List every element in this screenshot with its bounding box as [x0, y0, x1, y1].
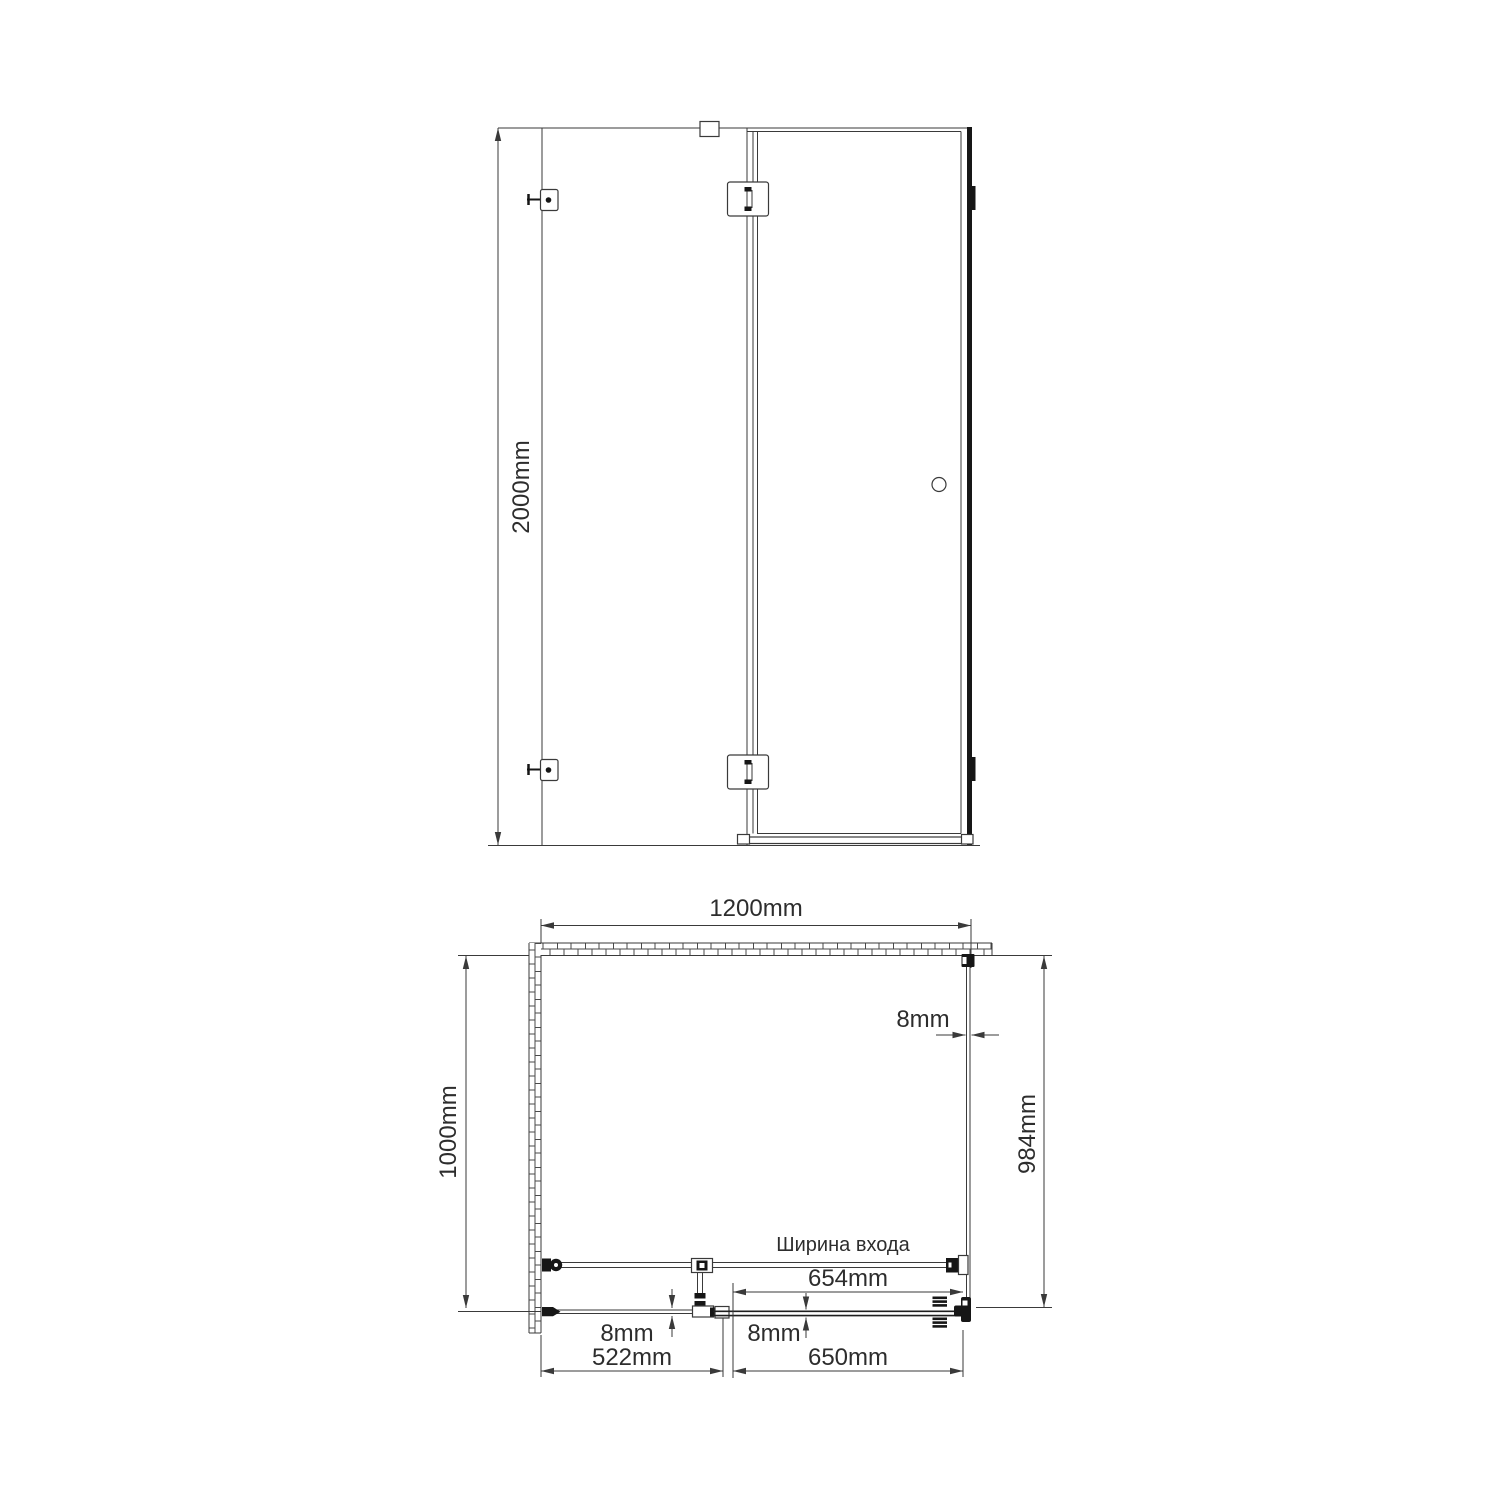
height-dimension-label: 2000mm: [508, 440, 535, 533]
dim-height-2000: 2000mm: [498, 128, 542, 845]
top-glass-clamp: [700, 122, 719, 137]
technical-drawing-canvas: 2000mm: [0, 0, 1500, 1500]
side-wall-bracket-bottom: [972, 757, 976, 781]
support-bar: [542, 1256, 968, 1275]
entry-width-caption: Ширина входа: [776, 1234, 910, 1256]
wall-bracket-top: [527, 190, 558, 211]
dim-depth-1000: 1000mm: [435, 956, 541, 1312]
width-dimension-label: 1200mm: [709, 895, 802, 922]
door-section-label: 650mm: [808, 1344, 888, 1371]
plan-view: 1200mm 1000mm 984mm 8mm: [435, 895, 1052, 1378]
door-glass-thickness-label: 8mm: [747, 1320, 800, 1347]
wall-left: [529, 943, 541, 1333]
side-glass-thickness-label: 8mm: [896, 1006, 949, 1033]
door-panel: [747, 132, 961, 834]
support-bar-post: [695, 1273, 706, 1307]
side-wall-bracket-top: [972, 186, 976, 210]
dim-width-1200: 1200mm: [541, 895, 971, 968]
wall-top: [458, 943, 1052, 956]
depth-dimension-label: 1000mm: [435, 1085, 462, 1178]
dim-thickness-fixed-8: 8mm: [600, 1289, 672, 1347]
side-panel-edge: [970, 127, 976, 845]
hinge-top: [728, 182, 769, 216]
dim-thickness-side-8: 8mm: [896, 1006, 999, 1035]
threshold: [738, 835, 974, 845]
dim-thickness-door-8: 8mm: [747, 1293, 806, 1347]
dim-side-984: 984mm: [976, 956, 1052, 1308]
wall-profile-clamp: [542, 1307, 561, 1316]
corner-bracket: [954, 1297, 971, 1322]
door-front-glass: [713, 1311, 963, 1315]
front-view: 2000mm: [488, 122, 980, 846]
door-knob: [932, 478, 946, 492]
support-bar-wall-bracket: [542, 1259, 562, 1272]
side-panel-dimension-label: 984mm: [1014, 1094, 1041, 1174]
support-bar-mid-clamp: [692, 1259, 713, 1273]
entry-width-label: 654mm: [808, 1265, 888, 1292]
hinge-bottom: [728, 755, 769, 789]
wall-bracket-bottom: [527, 760, 558, 781]
fixed-front-glass: [542, 1307, 692, 1316]
fixed-glass-thickness-label: 8mm: [600, 1320, 653, 1347]
support-bar-glass-bracket: [946, 1256, 968, 1275]
fixed-section-label: 522mm: [592, 1344, 672, 1371]
